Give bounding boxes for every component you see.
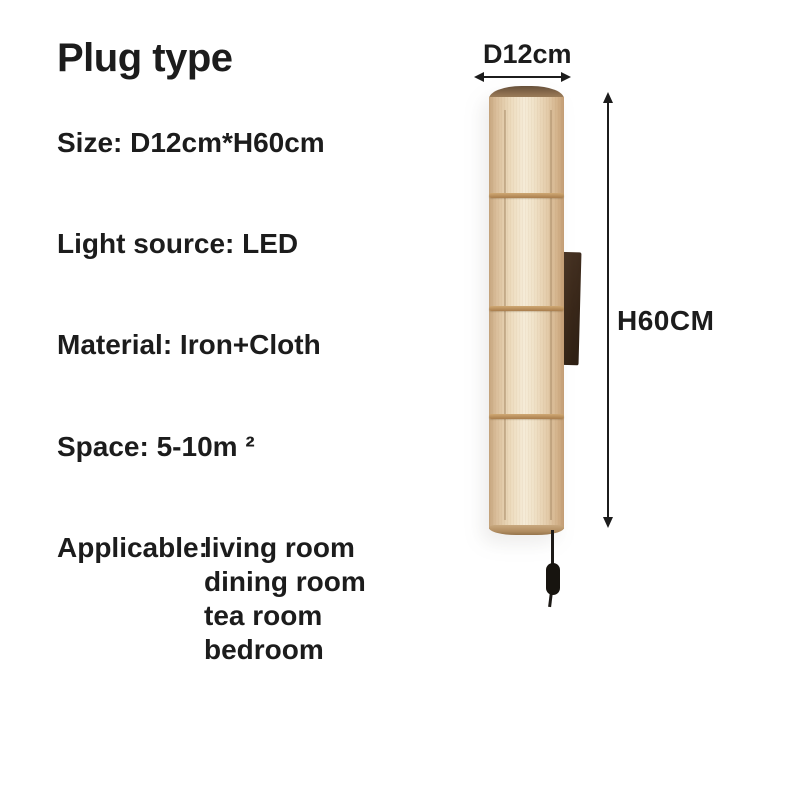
diameter-arrow-icon	[474, 72, 571, 82]
diameter-label: D12cm	[483, 39, 572, 70]
arrow-line	[482, 76, 563, 78]
height-arrow-icon	[601, 92, 615, 528]
cord-switch	[546, 563, 560, 595]
lamp-band	[489, 193, 564, 198]
arrowhead-down-icon	[603, 517, 613, 528]
arrowhead-right-icon	[561, 72, 571, 82]
lamp-fabric-shade	[489, 97, 564, 529]
height-label: H60CM	[617, 305, 714, 337]
applicable-label: Applicable:	[57, 531, 204, 565]
fabric-seam	[550, 110, 552, 520]
spec-space: Space: 5-10m ²	[57, 430, 255, 464]
room-item: tea room	[204, 599, 366, 633]
lamp-band	[489, 306, 564, 311]
lamp-illustration	[489, 86, 564, 535]
spec-light-source: Light source: LED	[57, 227, 298, 261]
fabric-seam	[504, 110, 506, 520]
room-item: living room	[204, 531, 366, 565]
arrow-line	[607, 101, 609, 519]
room-item: bedroom	[204, 633, 366, 667]
lamp-band	[489, 414, 564, 419]
spec-size: Size: D12cm*H60cm	[57, 126, 325, 160]
page-title: Plug type	[57, 34, 233, 82]
applicable-room-list: living room dining room tea room bedroom	[204, 531, 366, 667]
plug-type-infographic: { "header": { "title": "Plug type" }, "s…	[0, 0, 800, 800]
spec-applicable: Applicable: living room dining room tea …	[57, 531, 366, 667]
room-item: dining room	[204, 565, 366, 599]
spec-material: Material: Iron+Cloth	[57, 328, 321, 362]
